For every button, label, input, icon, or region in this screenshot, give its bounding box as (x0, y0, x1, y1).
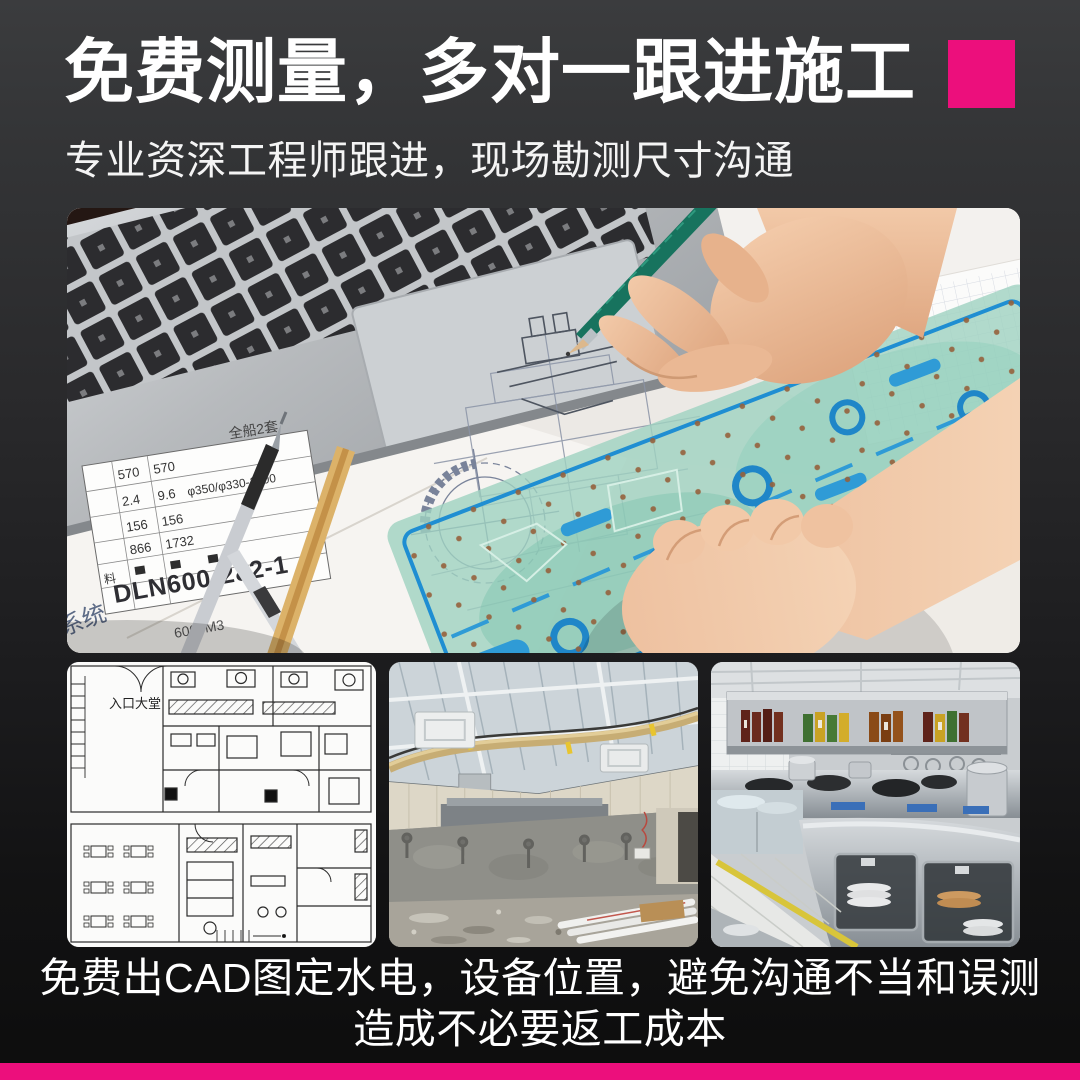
thumb-cad-floorplan: 入口大堂 (67, 662, 376, 947)
table-cell: 9.6 (156, 486, 176, 504)
thumbnail-row: 入口大堂 (67, 662, 1020, 947)
floorplan-illustration: 入口大堂 (67, 662, 376, 947)
hero-photo-illustration: 全船2套 570 570 2.4 9.6 φ350/φ330-1500 156 … (67, 208, 1020, 653)
glass-cabinet-doors (835, 854, 1013, 942)
thumb-commercial-kitchen (711, 662, 1020, 947)
table-cell: 2.4 (121, 491, 141, 509)
steel-counter-top (447, 798, 602, 806)
caption-block: 免费出CAD图定水电，设备位置，避免沟通不当和误测 造成不必要返工成本 (0, 953, 1080, 1055)
bottom-accent-bar (0, 1063, 1080, 1080)
promo-page: 免费测量，多对一跟进施工 专业资深工程师跟进，现场勘测尺寸沟通 (0, 0, 1080, 1080)
thumb-construction-site (389, 662, 698, 947)
accent-square-icon (948, 40, 1015, 108)
page-title: 免费测量，多对一跟进施工 (64, 34, 944, 111)
front-counter (799, 818, 1020, 947)
page-subtitle: 专业资深工程师跟进，现场勘测尺寸沟通 (65, 128, 965, 186)
caption-line-1: 免费出CAD图定水电，设备位置，避免沟通不当和误测 (0, 953, 1080, 1004)
overhead-shelf (727, 692, 1007, 754)
left-counter (711, 790, 803, 854)
kitchen-illustration (711, 662, 1020, 947)
caption-line-2: 造成不必要返工成本 (0, 1004, 1080, 1055)
floorplan-room-label: 入口大堂 (109, 696, 161, 711)
construction-illustration (389, 662, 698, 947)
hero-photo: 全船2套 570 570 2.4 9.6 φ350/φ330-1500 156 … (67, 208, 1020, 653)
